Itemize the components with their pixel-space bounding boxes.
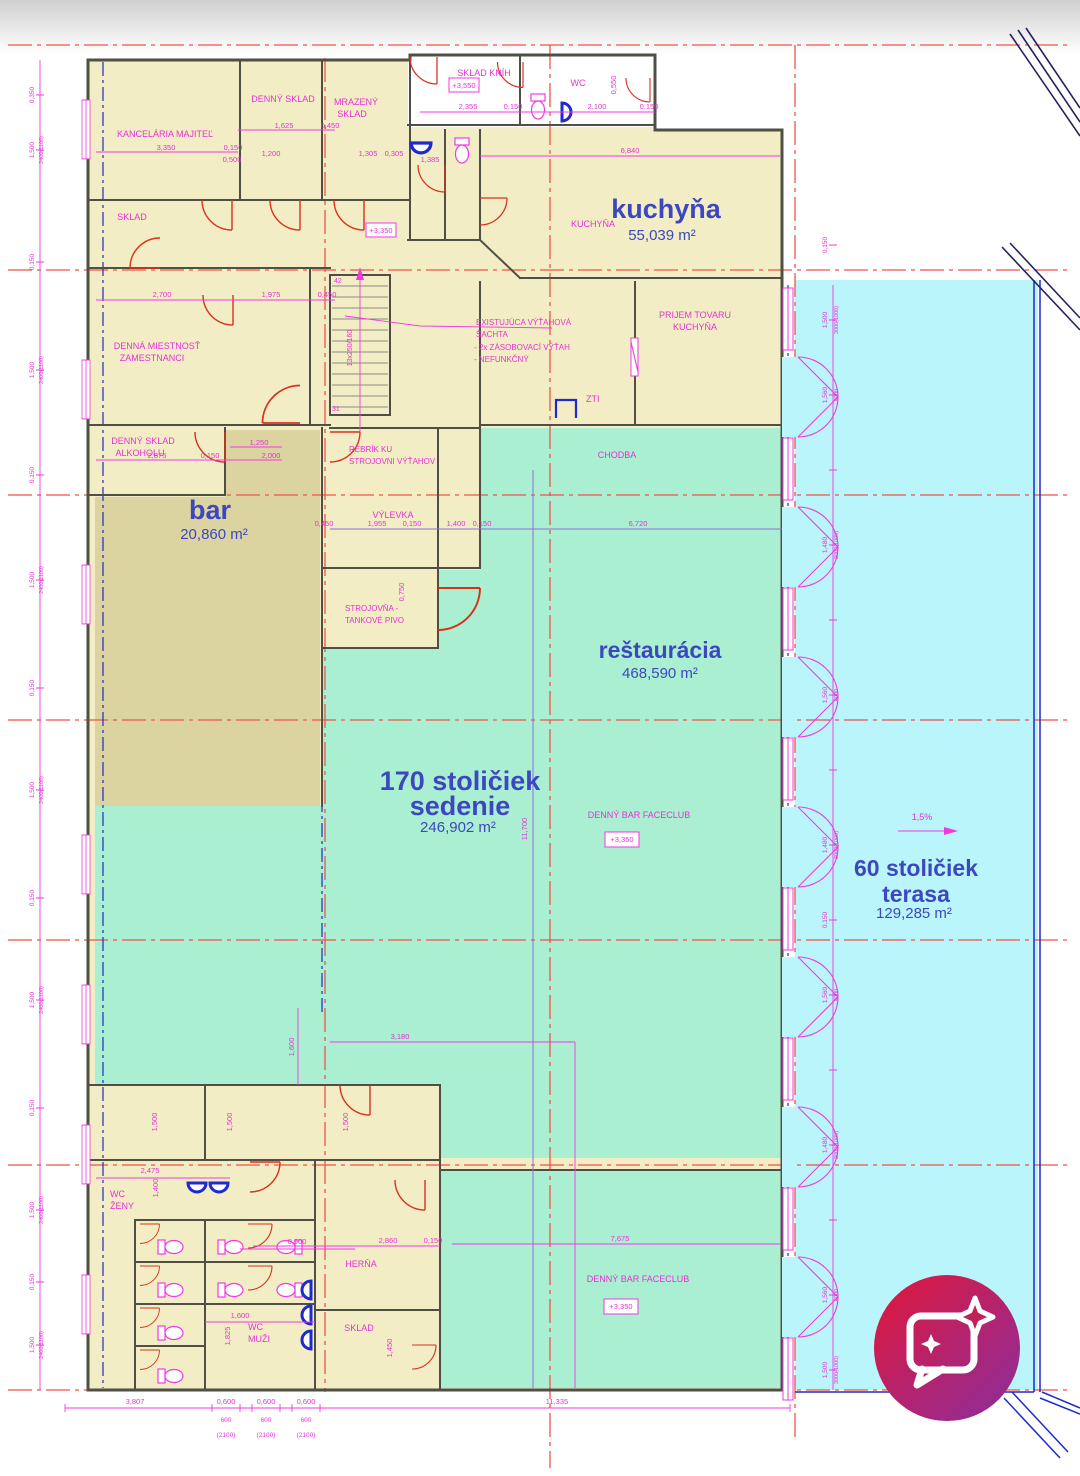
chain-spec: 2400(1100) <box>39 986 45 1014</box>
dim-label: 0,150 <box>424 1236 443 1245</box>
room-label-sklad-dole: SKLAD <box>344 1323 374 1333</box>
area-label-terasa-1: 60 stoličiek <box>854 855 978 881</box>
dim-label: 0,900 <box>288 1237 307 1246</box>
chain-label: 1,500 <box>29 991 36 1008</box>
dim-label: 0,750 <box>397 583 406 602</box>
toilet-icon <box>455 138 469 163</box>
room-label-sachta-3: - 2x ZÁSOBOVACÍ VÝŤAH <box>474 343 570 352</box>
dim-label: 2,700 <box>153 290 172 299</box>
room-label-denna-1: DENNÁ MIESTNOSŤ <box>114 341 201 351</box>
chain-label: 1,560 <box>822 986 829 1003</box>
dim-label: 1,400 <box>447 519 466 528</box>
dim-label: 1,975 <box>262 290 281 299</box>
area-size-sedenie: 246,902 m² <box>420 819 496 836</box>
room-label-herna: HERŇA <box>345 1259 377 1269</box>
dim-label: 0,600 <box>297 1397 316 1406</box>
chain-spec: 2400(1100) <box>39 1196 45 1224</box>
area-size-bar: 20,860 m² <box>180 526 248 543</box>
dim-label: 0,450 <box>318 290 337 299</box>
toilet-icon <box>218 1283 243 1297</box>
chain-spec: 2400(1100) <box>39 136 45 164</box>
dim-sub: (2100) <box>217 1432 236 1439</box>
chain-label: 1,500 <box>822 311 829 328</box>
chain-label: 1,500 <box>29 1201 36 1218</box>
dim-label: 11,335 <box>546 1397 568 1406</box>
dim-label: 2,475 <box>141 1166 160 1175</box>
room-label-kancelaria: KANCELÁRIA MAJITEĽ <box>117 129 213 139</box>
dim-label: 7,675 <box>611 1234 630 1243</box>
chain-spec: 4000 <box>834 1289 840 1301</box>
dim-sub: (2100) <box>257 1432 276 1439</box>
chain-label: 1,500 <box>29 1336 36 1353</box>
dim-label: 6,720 <box>629 519 648 528</box>
chain-label: 1,480 <box>822 1136 829 1153</box>
dim-label: 3,350 <box>157 143 176 152</box>
room-label-strojovna-1: STROJOVŇA - <box>345 604 399 613</box>
chain-label: 0,150 <box>29 466 36 483</box>
room-label-faceclub-bottom: DENNÝ BAR FACECLUB <box>587 1274 690 1284</box>
dim-label: 2,860 <box>379 1236 398 1245</box>
scan-edge-shadow <box>0 0 1080 54</box>
room-label-wc-zeny-1: WC <box>110 1189 125 1199</box>
dim-label: 0,450 <box>321 121 340 130</box>
dim-label: 2,355 <box>459 102 478 111</box>
chain-label: 0,350 <box>29 86 36 103</box>
room-label-sklad-knih: SKLAD KNÍH <box>457 68 511 78</box>
dim-label: 0,450 <box>315 519 334 528</box>
toilet-icon <box>531 94 545 119</box>
room-label-sachta-1: EXISTUJÚCA VÝŤAHOVÁ <box>476 318 572 327</box>
chain-spec: 3000(1000) <box>834 531 840 559</box>
chain-label: 0,150 <box>29 679 36 696</box>
room-label-wc-zeny-2: ŽENY <box>110 1201 134 1211</box>
stairs-top-number: 42 <box>334 278 342 285</box>
dim-label: 0,600 <box>257 1397 276 1406</box>
room-label-wc: WC <box>571 78 586 88</box>
level-label: +3,550 <box>452 81 475 90</box>
dim-label: 2,100 <box>588 102 607 111</box>
dim-label: 1,500 <box>341 1113 350 1132</box>
chain-label: 0,150 <box>822 236 829 253</box>
level-label: +3,350 <box>610 835 633 844</box>
dim-sub: (2100) <box>297 1432 316 1439</box>
dim-sub: 600 <box>301 1417 312 1424</box>
room-label-zti: ZTI <box>586 394 600 404</box>
chain-label: 0,150 <box>29 1273 36 1290</box>
area-size-terasa: 129,285 m² <box>876 905 952 922</box>
dim-label: 1,385 <box>421 155 440 164</box>
chat-sparkle-logo[interactable] <box>874 1275 1020 1421</box>
sink-icon <box>411 143 431 153</box>
floorplan-canvas: 42 31 13x250/160 <box>0 0 1080 1476</box>
chain-label: 0,150 <box>29 253 36 270</box>
dim-label: 1,500 <box>150 1113 159 1132</box>
dim-label: 0,500 <box>223 155 242 164</box>
urinal-icon <box>302 1281 311 1299</box>
chain-label: 1,500 <box>29 781 36 798</box>
chain-spec: 3000(1000) <box>834 831 840 859</box>
chain-spec: 2400(1100) <box>39 776 45 804</box>
room-label-sklad: SKLAD <box>117 212 147 222</box>
dim-label: 1,600 <box>287 1038 296 1057</box>
dim-label: 1,450 <box>385 1339 394 1358</box>
room-label-mrazeny-2: SKLAD <box>337 109 367 119</box>
chain-label: 0,150 <box>29 1099 36 1116</box>
dim-label: 0,305 <box>385 149 404 158</box>
dim-label: 11,700 <box>520 818 529 840</box>
room-label-rebrik-2: STROJOVNI VÝŤAHOV <box>349 457 436 466</box>
toilet-icon <box>158 1369 183 1383</box>
chain-label: 1,500 <box>29 141 36 158</box>
stairs-bottom-number: 31 <box>332 406 340 413</box>
area-label-restauracia: reštaurácia <box>599 637 722 663</box>
toilet-icon <box>158 1240 183 1254</box>
dim-label: 1,400 <box>151 1179 160 1198</box>
room-label-wc-muzi-2: MUŽI <box>248 1334 270 1344</box>
dim-label: 1,625 <box>275 121 294 130</box>
dim-sub: 600 <box>221 1417 232 1424</box>
dim-label: 1,825 <box>223 1327 232 1346</box>
room-label-chodba: CHODBA <box>598 450 637 460</box>
room-label-kuchyna-small: KUCHYŇA <box>571 219 615 229</box>
dim-label: 0,150 <box>504 102 523 111</box>
chain-label: 0,150 <box>822 911 829 928</box>
level-label: +3,350 <box>369 226 392 235</box>
room-label-mrazeny-1: MRAZENÝ <box>334 97 378 107</box>
chain-spec: 4000 <box>834 689 840 701</box>
room-label-prijem-2: KUCHYŇA <box>673 322 717 332</box>
slope-label: 1,5% <box>912 812 933 822</box>
room-label-vylevka: VÝLEVKA <box>372 510 413 520</box>
room-label-denna-2: ZAMESTNANCI <box>120 353 185 363</box>
room-label-strojovna-2: TANKOVÉ PIVO <box>345 616 404 625</box>
dim-label: 1,305 <box>359 149 378 158</box>
toilet-icon <box>158 1326 183 1340</box>
chain-spec: 2400(1100) <box>39 566 45 594</box>
chain-spec: 2400(1100) <box>39 1331 45 1359</box>
dim-label: 0,150 <box>403 519 422 528</box>
dim-label: 1,200 <box>262 149 281 158</box>
chain-label: 1,480 <box>822 836 829 853</box>
toilet-icon <box>218 1240 243 1254</box>
area-label-sedenie-2: sedenie <box>410 791 511 821</box>
room-label-rebrik-1: REBRÍK KU <box>349 445 392 454</box>
dim-sub: 600 <box>261 1417 272 1424</box>
dim-label: 0,550 <box>609 76 618 95</box>
room-label-sachta-2: ŠACHTA <box>476 330 509 339</box>
chain-spec: 4000 <box>834 389 840 401</box>
chain-spec: 3000(1000) <box>834 306 840 334</box>
terrace-floor <box>795 280 1038 1390</box>
urinal-icon <box>210 1183 228 1192</box>
urinal-icon <box>188 1183 206 1192</box>
logo-circle[interactable] <box>874 1275 1020 1421</box>
room-label-denny-sklad: DENNÝ SKLAD <box>251 94 315 104</box>
room-label-faceclub-mid: DENNÝ BAR FACECLUB <box>588 810 691 820</box>
dim-label: 0,150 <box>473 519 492 528</box>
door-hatch <box>631 338 638 376</box>
chain-label: 1,480 <box>822 536 829 553</box>
chain-label: 0,150 <box>29 889 36 906</box>
dim-label: 3,807 <box>126 1397 145 1406</box>
dim-label: 1,500 <box>225 1113 234 1132</box>
chain-label: 1,560 <box>822 686 829 703</box>
dim-label: 0,150 <box>201 451 220 460</box>
chain-spec: 3000(1000) <box>834 1131 840 1159</box>
dim-label: 1,955 <box>368 519 387 528</box>
room-label-alkohol-1: DENNÝ SKLAD <box>111 436 175 446</box>
room-label-prijem-1: PRIJEM TOVARU <box>659 310 731 320</box>
dim-label: 1,600 <box>231 1311 250 1320</box>
area-label-terasa-2: terasa <box>882 881 950 907</box>
chain-label: 1,500 <box>822 1361 829 1378</box>
dim-label: 1,250 <box>250 438 269 447</box>
dim-label: 6,840 <box>621 146 640 155</box>
dim-label: 0,600 <box>217 1397 236 1406</box>
chain-spec: 2400(1100) <box>39 356 45 384</box>
area-size-kuchyna: 55,039 m² <box>628 227 696 244</box>
floorplan-page: 42 31 13x250/160 <box>0 0 1080 1476</box>
dim-label: 2,000 <box>262 451 281 460</box>
area-size-restauracia: 468,590 m² <box>622 665 698 682</box>
room-label-sachta-4: - NEFUNKČNÝ <box>474 355 529 364</box>
chain-label: 1,560 <box>822 1286 829 1303</box>
urinal-icon <box>302 1331 311 1349</box>
urinal-icon <box>302 1306 311 1324</box>
stairs-spec-label: 13x250/160 <box>347 330 354 367</box>
toilet-icon <box>277 1283 302 1297</box>
dim-label: 0,150 <box>640 102 659 111</box>
dim-label: 3,180 <box>391 1032 410 1041</box>
toilet-icon <box>158 1283 183 1297</box>
chain-label: 1,500 <box>29 361 36 378</box>
dim-label: 0,150 <box>224 143 243 152</box>
chain-label: 1,560 <box>822 386 829 403</box>
level-label: +3,350 <box>609 1302 632 1311</box>
area-label-kuchyna: kuchyňa <box>611 194 722 224</box>
chain-spec: 4000 <box>834 989 840 1001</box>
area-label-bar: bar <box>189 495 232 525</box>
room-label-alkohol-2: ALKOHOLU <box>115 448 164 458</box>
chain-spec: 3000(1000) <box>834 1356 840 1384</box>
room-label-wc-muzi-1: WC <box>248 1322 263 1332</box>
chain-label: 1,500 <box>29 571 36 588</box>
